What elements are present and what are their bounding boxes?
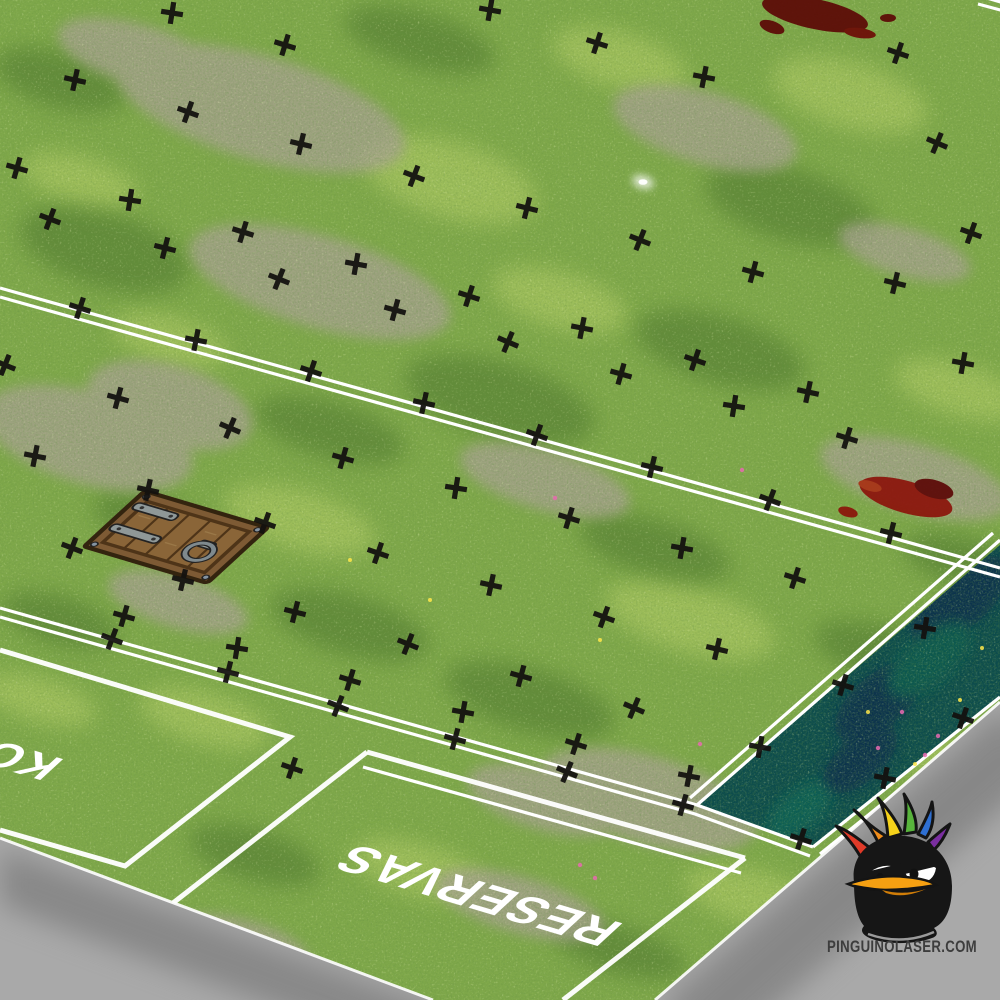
- pink-flower-speck: [740, 468, 744, 472]
- yellow-flower-speck: [598, 638, 602, 642]
- yellow-flower-speck: [866, 710, 870, 714]
- pink-flower-speck: [923, 753, 927, 757]
- pink-flower-speck: [900, 710, 904, 714]
- yellow-flower-speck: [958, 698, 962, 702]
- blood-stain: [880, 14, 896, 22]
- pink-flower-speck: [553, 496, 557, 500]
- pink-flower-speck: [936, 734, 940, 738]
- mat-scene: RESERVAS KO: [0, 0, 1000, 1000]
- pink-flower-speck: [578, 863, 582, 867]
- pink-flower-speck: [698, 742, 702, 746]
- yellow-flower-speck: [428, 598, 432, 602]
- yellow-flower-speck: [913, 762, 917, 766]
- product-photo-stage: RESERVAS KO: [0, 0, 1000, 1000]
- pink-flower-speck: [876, 746, 880, 750]
- yellow-flower-speck: [348, 558, 352, 562]
- pink-flower-speck: [593, 876, 597, 880]
- brand-site-label: PINGUINOLASER.COM: [827, 938, 977, 956]
- yellow-flower-speck: [980, 646, 984, 650]
